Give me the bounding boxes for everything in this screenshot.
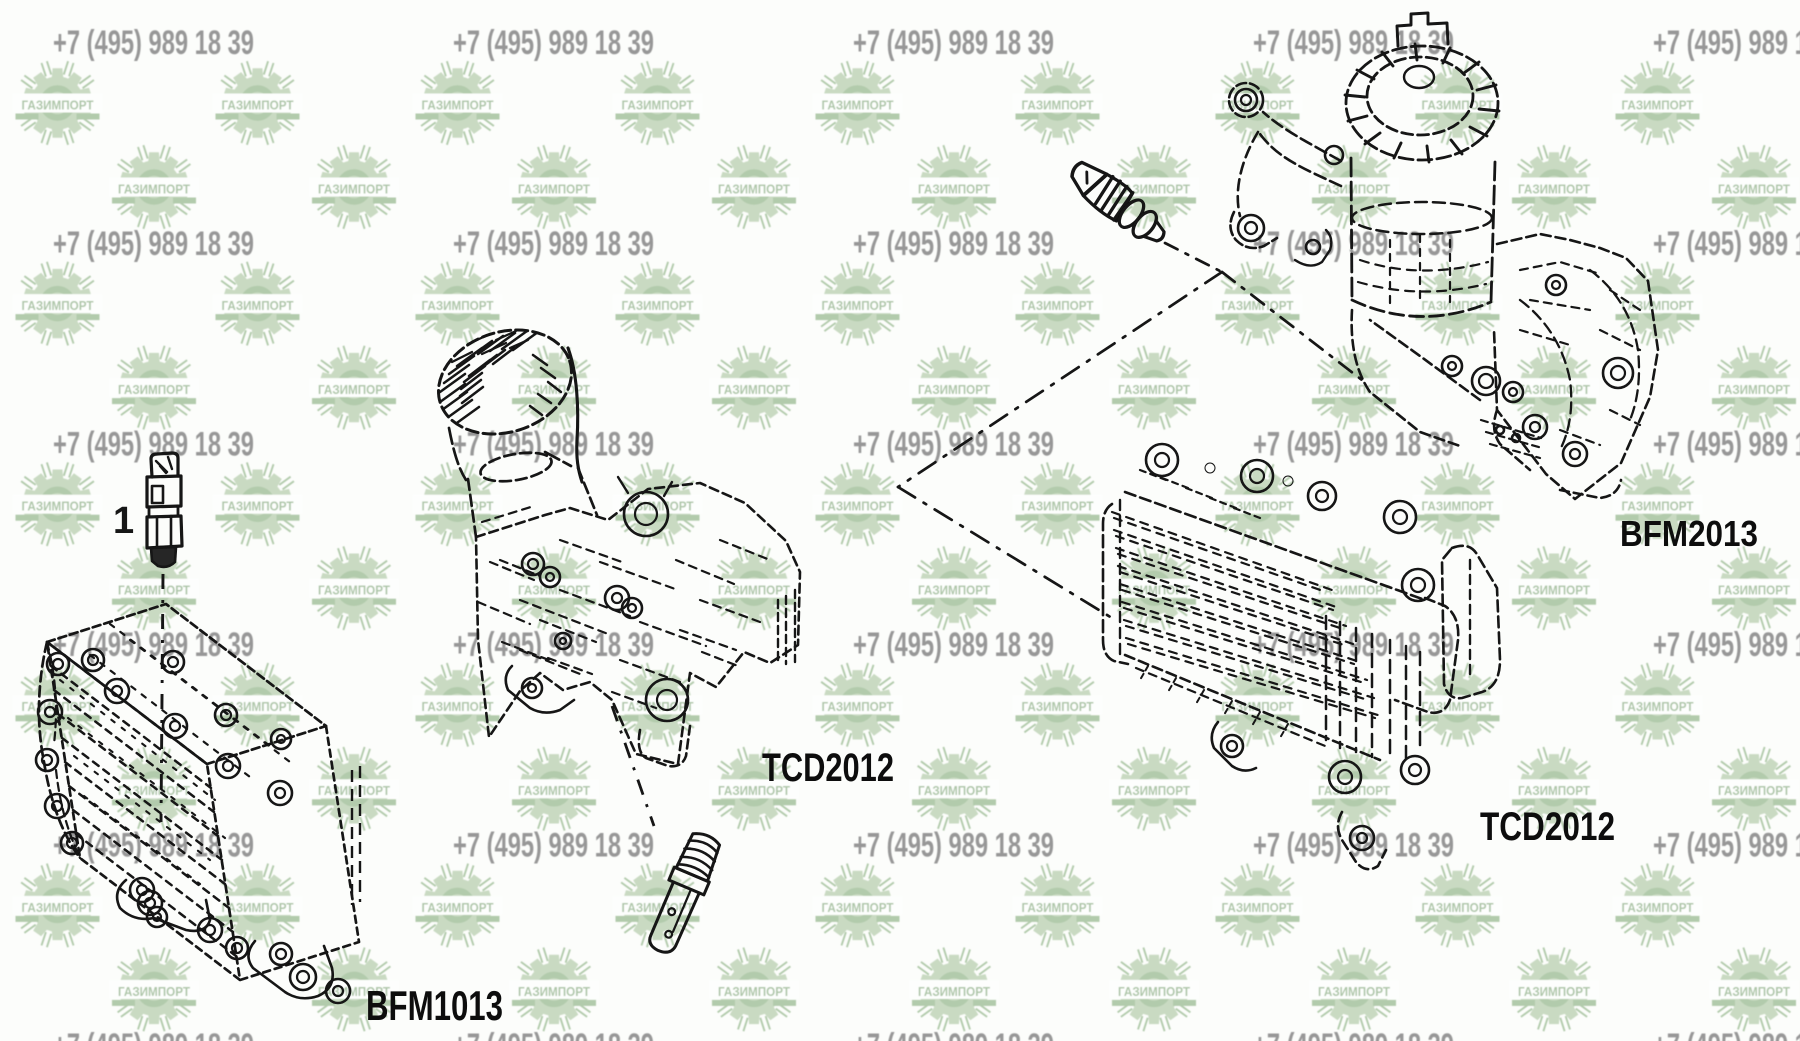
svg-text:+7 (495) 989 18 39: +7 (495) 989 18 39 — [1653, 827, 1800, 865]
svg-text:+7 (495) 989 18 39: +7 (495) 989 18 39 — [53, 1027, 254, 1041]
svg-text:+7 (495) 989 18 39: +7 (495) 989 18 39 — [53, 225, 254, 263]
svg-text:+7 (495) 989 18 39: +7 (495) 989 18 39 — [1653, 626, 1800, 664]
svg-text:+7 (495) 989 18 39: +7 (495) 989 18 39 — [1653, 1027, 1800, 1041]
svg-text:+7 (495) 989 18 39: +7 (495) 989 18 39 — [453, 24, 654, 62]
svg-text:+7 (495) 989 18 39: +7 (495) 989 18 39 — [453, 827, 654, 865]
svg-text:+7 (495) 989 18 39: +7 (495) 989 18 39 — [853, 827, 1054, 865]
svg-text:+7 (495) 989 18 39: +7 (495) 989 18 39 — [1253, 425, 1454, 463]
svg-text:+7 (495) 989 18 39: +7 (495) 989 18 39 — [1253, 1027, 1454, 1041]
svg-text:BFM1013: BFM1013 — [366, 982, 503, 1029]
svg-text:1: 1 — [113, 500, 134, 542]
svg-text:+7 (495) 989 18 39: +7 (495) 989 18 39 — [1253, 24, 1454, 62]
svg-text:+7 (495) 989 18 39: +7 (495) 989 18 39 — [853, 24, 1054, 62]
svg-text:TCD2012: TCD2012 — [1480, 805, 1615, 849]
svg-text:+7 (495) 989 18 39: +7 (495) 989 18 39 — [53, 425, 254, 463]
svg-text:+7 (495) 989 18 39: +7 (495) 989 18 39 — [853, 626, 1054, 664]
svg-text:TCD2012: TCD2012 — [762, 746, 894, 790]
svg-text:+7 (495) 989 18 39: +7 (495) 989 18 39 — [1253, 225, 1454, 263]
svg-text:+7 (495) 989 18 39: +7 (495) 989 18 39 — [853, 1027, 1054, 1041]
svg-text:+7 (495) 989 18 39: +7 (495) 989 18 39 — [53, 24, 254, 62]
svg-text:+7 (495) 989 18 39: +7 (495) 989 18 39 — [453, 225, 654, 263]
svg-text:+7 (495) 989 18 39: +7 (495) 989 18 39 — [853, 225, 1054, 263]
svg-text:+7 (495) 989 18 39: +7 (495) 989 18 39 — [1653, 225, 1800, 263]
svg-text:BFM2013: BFM2013 — [1620, 513, 1758, 554]
svg-text:+7 (495) 989 18 39: +7 (495) 989 18 39 — [453, 1027, 654, 1041]
svg-text:+7 (495) 989 18 39: +7 (495) 989 18 39 — [1653, 24, 1800, 62]
svg-text:+7 (495) 989 18 39: +7 (495) 989 18 39 — [453, 626, 654, 664]
svg-text:+7 (495) 989 18 39: +7 (495) 989 18 39 — [1653, 425, 1800, 463]
svg-text:+7 (495) 989 18 39: +7 (495) 989 18 39 — [853, 425, 1054, 463]
